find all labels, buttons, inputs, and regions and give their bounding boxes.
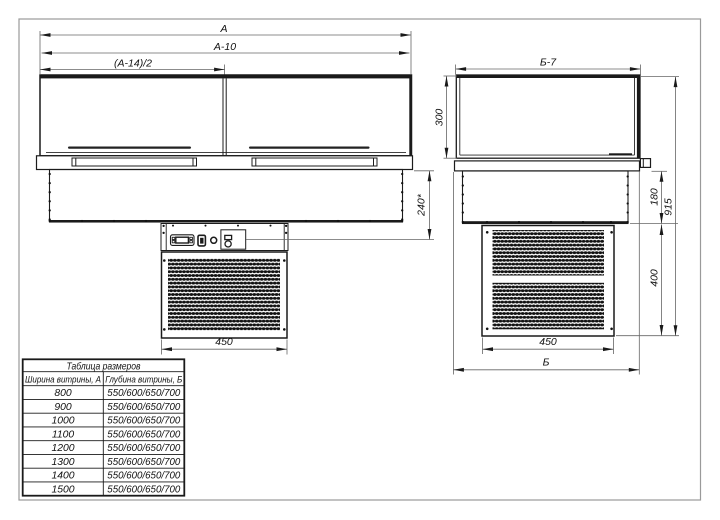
svg-text:550/600/650/700: 550/600/650/700 <box>107 471 180 482</box>
svg-text:1300: 1300 <box>51 457 74 468</box>
svg-text:400: 400 <box>649 269 661 287</box>
svg-text:1200: 1200 <box>51 443 74 454</box>
svg-text:Ширина витрины, А: Ширина витрины, А <box>25 375 101 385</box>
svg-text:800: 800 <box>54 388 72 399</box>
svg-text:(A-14)/2: (A-14)/2 <box>114 58 152 70</box>
svg-text:Б-7: Б-7 <box>540 57 557 69</box>
svg-text:A-10: A-10 <box>213 41 236 53</box>
svg-text:900: 900 <box>54 402 72 413</box>
svg-text:1500: 1500 <box>51 484 74 495</box>
svg-text:550/600/650/700: 550/600/650/700 <box>107 388 180 399</box>
svg-text:300: 300 <box>434 109 446 127</box>
svg-text:450: 450 <box>539 336 557 348</box>
svg-text:1000: 1000 <box>51 416 74 427</box>
svg-text:1400: 1400 <box>51 471 74 482</box>
svg-text:550/600/650/700: 550/600/650/700 <box>107 416 180 427</box>
svg-text:Глубина витрины, Б: Глубина витрины, Б <box>105 375 182 385</box>
svg-text:550/600/650/700: 550/600/650/700 <box>107 457 180 468</box>
svg-text:180: 180 <box>649 188 661 206</box>
svg-text:240*: 240* <box>416 193 428 217</box>
svg-text:915: 915 <box>663 198 675 216</box>
svg-text:550/600/650/700: 550/600/650/700 <box>107 402 180 413</box>
svg-text:Б: Б <box>543 357 550 369</box>
svg-text:1100: 1100 <box>52 429 75 440</box>
svg-text:550/600/650/700: 550/600/650/700 <box>107 429 180 440</box>
svg-text:550/600/650/700: 550/600/650/700 <box>107 443 180 454</box>
svg-text:550/600/650/700: 550/600/650/700 <box>107 484 180 495</box>
svg-text:Таблица размеров: Таблица размеров <box>67 360 141 372</box>
svg-text:450: 450 <box>215 336 233 348</box>
svg-text:A: A <box>219 23 227 35</box>
